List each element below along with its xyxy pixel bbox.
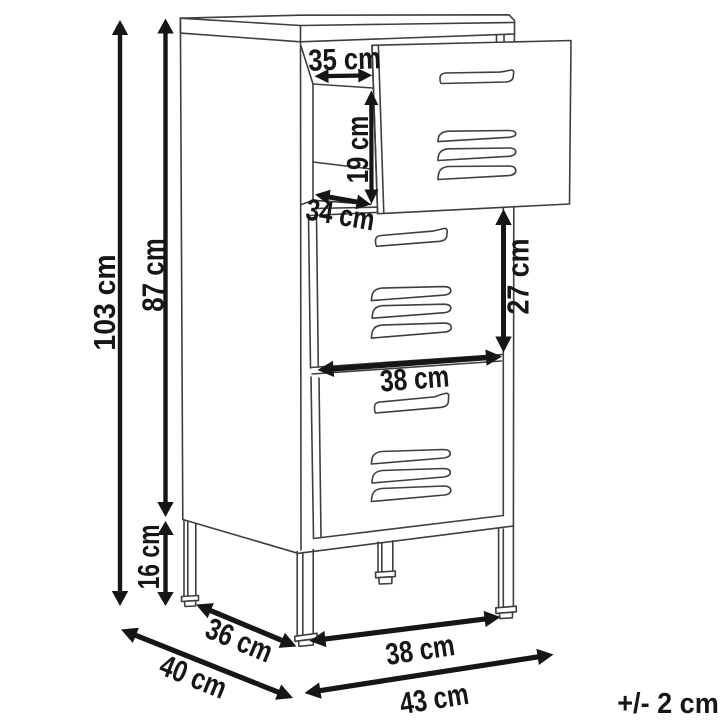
svg-text:43 cm: 43 cm: [397, 676, 471, 720]
svg-text:38 cm: 38 cm: [379, 359, 451, 399]
svg-text:103 cm: 103 cm: [88, 254, 122, 350]
svg-text:34 cm: 34 cm: [303, 192, 377, 237]
svg-text:35 cm: 35 cm: [308, 41, 382, 77]
svg-text:38 cm: 38 cm: [383, 627, 456, 671]
svg-text:27 cm: 27 cm: [502, 238, 536, 314]
svg-text:87 cm: 87 cm: [135, 238, 169, 312]
svg-text:16 cm: 16 cm: [132, 525, 166, 590]
svg-text:19 cm: 19 cm: [340, 116, 375, 183]
svg-text:36 cm: 36 cm: [201, 611, 278, 669]
svg-text:+/- 2 cm: +/- 2 cm: [617, 687, 719, 719]
